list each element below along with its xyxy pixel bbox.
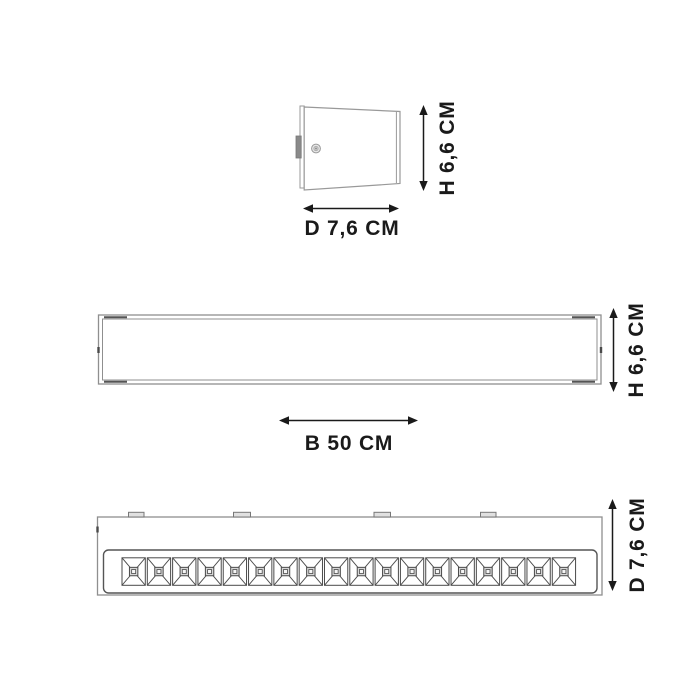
louver-cell — [249, 558, 272, 586]
louver-cell — [274, 558, 297, 586]
screw-icon — [312, 144, 321, 153]
louver-cell — [552, 558, 575, 586]
louver-cell — [324, 558, 347, 586]
side-depth-dimension-arrow — [303, 204, 399, 212]
louver-cell — [426, 558, 449, 586]
louver-cell — [223, 558, 246, 586]
bottom-depth-label: D 7,6 CM — [626, 497, 650, 592]
bottom-view-mount-tabs — [129, 512, 497, 517]
louver-cell — [502, 558, 525, 586]
side-depth-label: D 7,6 CM — [304, 217, 399, 241]
side-view-wall-bracket — [296, 136, 301, 158]
louver-cell — [198, 558, 221, 586]
front-view-inner-frame — [103, 319, 598, 380]
bottom-view — [98, 512, 603, 595]
front-view — [99, 315, 602, 384]
louver-cell — [400, 558, 423, 586]
side-view — [296, 106, 400, 190]
louver-cell — [375, 558, 398, 586]
side-height-label: H 6,6 CM — [436, 100, 460, 195]
louver-cell — [299, 558, 322, 586]
side-height-dimension-arrow — [419, 105, 427, 191]
bottom-depth-dimension-arrow — [608, 499, 616, 591]
front-height-label: H 6,6 CM — [625, 302, 649, 397]
diagram-linework — [0, 0, 700, 700]
louver-cell — [451, 558, 474, 586]
front-height-dimension-arrow — [609, 308, 617, 392]
louver-cell — [173, 558, 196, 586]
dimension-diagram: H 6,6 CM D 7,6 CM H 6,6 CM B 50 CM D 7,6… — [0, 0, 700, 700]
louver-cell — [122, 558, 145, 586]
front-width-dimension-arrow — [279, 416, 418, 424]
louver-cell — [147, 558, 170, 586]
louver-cell — [527, 558, 550, 586]
front-width-label: B 50 CM — [305, 432, 393, 456]
louver-cell — [350, 558, 373, 586]
louver-cell — [476, 558, 499, 586]
